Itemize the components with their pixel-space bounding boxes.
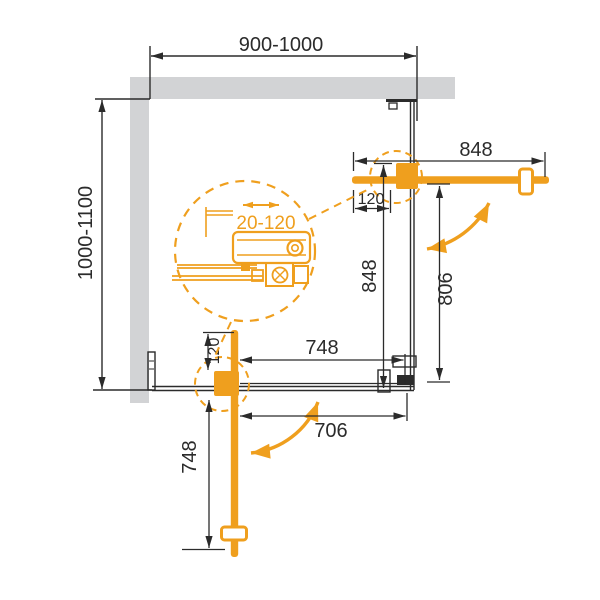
right-door-handle — [520, 169, 533, 194]
dim-label-bottom-fixed-width: 706 — [314, 420, 347, 442]
wall-top — [130, 77, 455, 99]
shower-enclosure-diagram: 900-1000 1000-1100 848 — [0, 0, 600, 600]
dim-label-right-door-width: 848 — [459, 139, 492, 161]
bottom-door-open-panel — [231, 330, 238, 557]
right-door-pivot-block — [396, 163, 418, 189]
dim-label-right-clear-opening: 806 — [435, 272, 457, 305]
dim-label-bottom-panel-width: 748 — [305, 337, 338, 359]
bottom-door-swing-arrow — [251, 402, 318, 453]
dim-label-right-panel-height: 848 — [359, 259, 381, 292]
dim-label-bottom-pivot-offset: 120 — [206, 338, 223, 365]
bottom-door-handle — [222, 527, 247, 540]
right-pivot-door: 848 120 — [352, 139, 549, 249]
technical-drawing-page: 900-1000 1000-1100 848 — [0, 0, 600, 600]
dim-label-depth-range: 1000-1100 — [75, 186, 97, 280]
dim-label-adjustment-range: 20-120 — [236, 213, 295, 234]
wall-left — [130, 99, 149, 403]
bottom-door-pivot-block — [214, 371, 239, 396]
detail-magnifier: 20-120 — [172, 181, 371, 356]
dim-label-width-range: 900-1000 — [239, 34, 324, 56]
bottom-side-frame — [148, 352, 414, 391]
left-wall-post — [148, 352, 155, 390]
right-door-swing-arrow — [427, 203, 489, 249]
dim-label-bottom-door-open-length: 748 — [179, 440, 201, 473]
bottom-pivot-door: 120 748 706 748 — [179, 330, 407, 557]
top-wall-bracket-foot — [389, 103, 397, 109]
